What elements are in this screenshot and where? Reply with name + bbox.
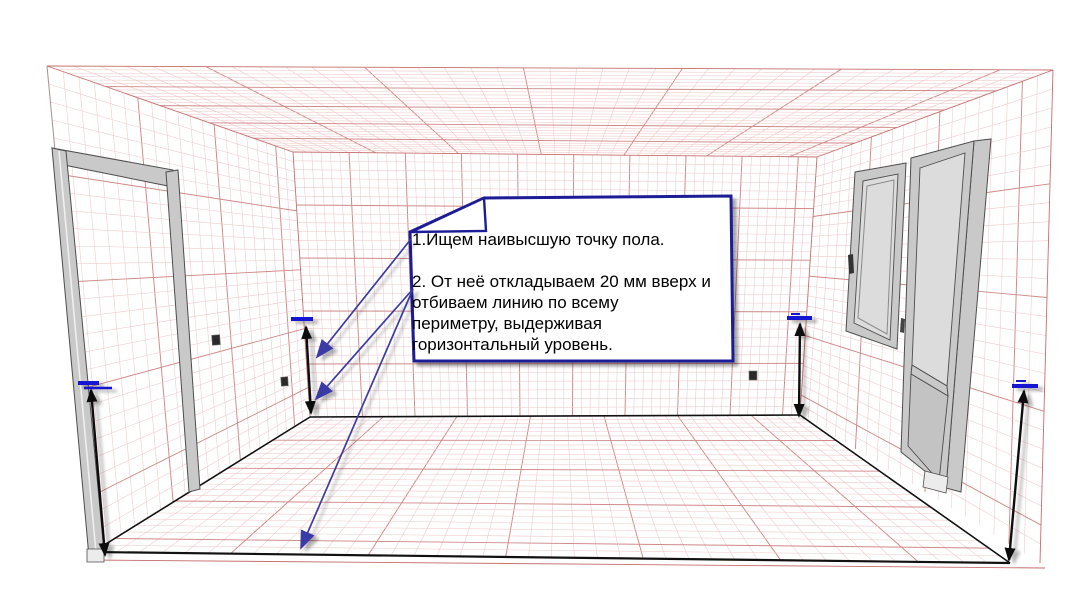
door-jamb-foot	[87, 549, 104, 562]
wall-front-right-edge	[1040, 70, 1053, 563]
ceiling-right-edge	[817, 70, 1053, 157]
outlet-1	[212, 335, 221, 346]
room-leveling-diagram: 1.Ищем наивысшую точку пола. 2. От неё о…	[0, 0, 1092, 606]
ceiling-grid	[57, 66, 1043, 157]
callout-arrow-1	[317, 239, 411, 357]
callout-text: 1.Ищем наивысшую точку пола. 2. От неё о…	[412, 229, 734, 355]
floor-back-edge	[310, 415, 800, 417]
door-lintel	[52, 148, 173, 186]
callout-box-fold-corner	[411, 198, 486, 232]
callout-arrows	[301, 239, 413, 548]
window-handle	[848, 254, 854, 274]
step-2-text: 2. От неё откладываем 20 мм вверх иотбив…	[412, 271, 734, 355]
level-mark-right	[1012, 381, 1038, 386]
callout-arrow-2	[316, 289, 413, 399]
balcony-door	[901, 139, 991, 493]
window-unit	[846, 163, 906, 349]
step-1-text: 1.Ищем наивысшую точку пола.	[412, 229, 734, 250]
window-latch	[900, 318, 905, 333]
outlet-2	[281, 377, 289, 386]
level-mark-back-right	[787, 314, 812, 318]
outlet-3	[749, 371, 757, 380]
callout-arrow-3	[301, 289, 413, 548]
measure-arrow-back-right	[799, 324, 800, 416]
